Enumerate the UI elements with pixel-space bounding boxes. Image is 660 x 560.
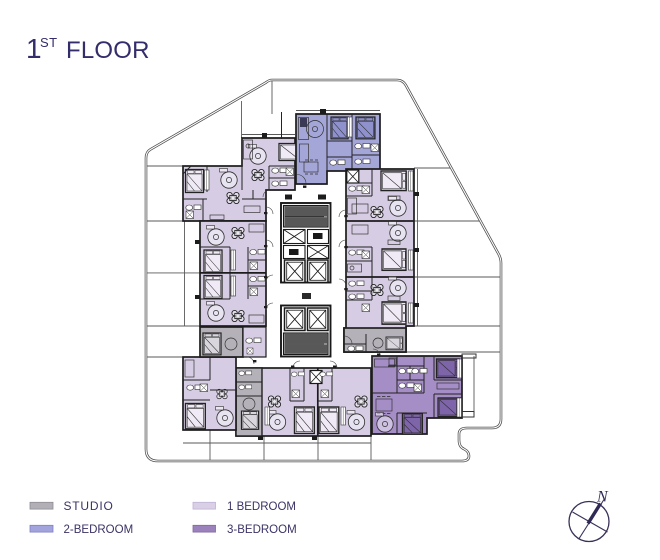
svg-text:STUDIO: STUDIO [64, 499, 114, 513]
svg-text:ST: ST [40, 35, 58, 50]
svg-text:2-BEDROOM: 2-BEDROOM [64, 524, 134, 536]
svg-text:FLOOR: FLOOR [66, 37, 150, 64]
svg-text:1 BEDROOM: 1 BEDROOM [227, 501, 296, 513]
svg-text:N: N [596, 489, 609, 506]
svg-text:3-BEDROOM: 3-BEDROOM [227, 524, 297, 536]
